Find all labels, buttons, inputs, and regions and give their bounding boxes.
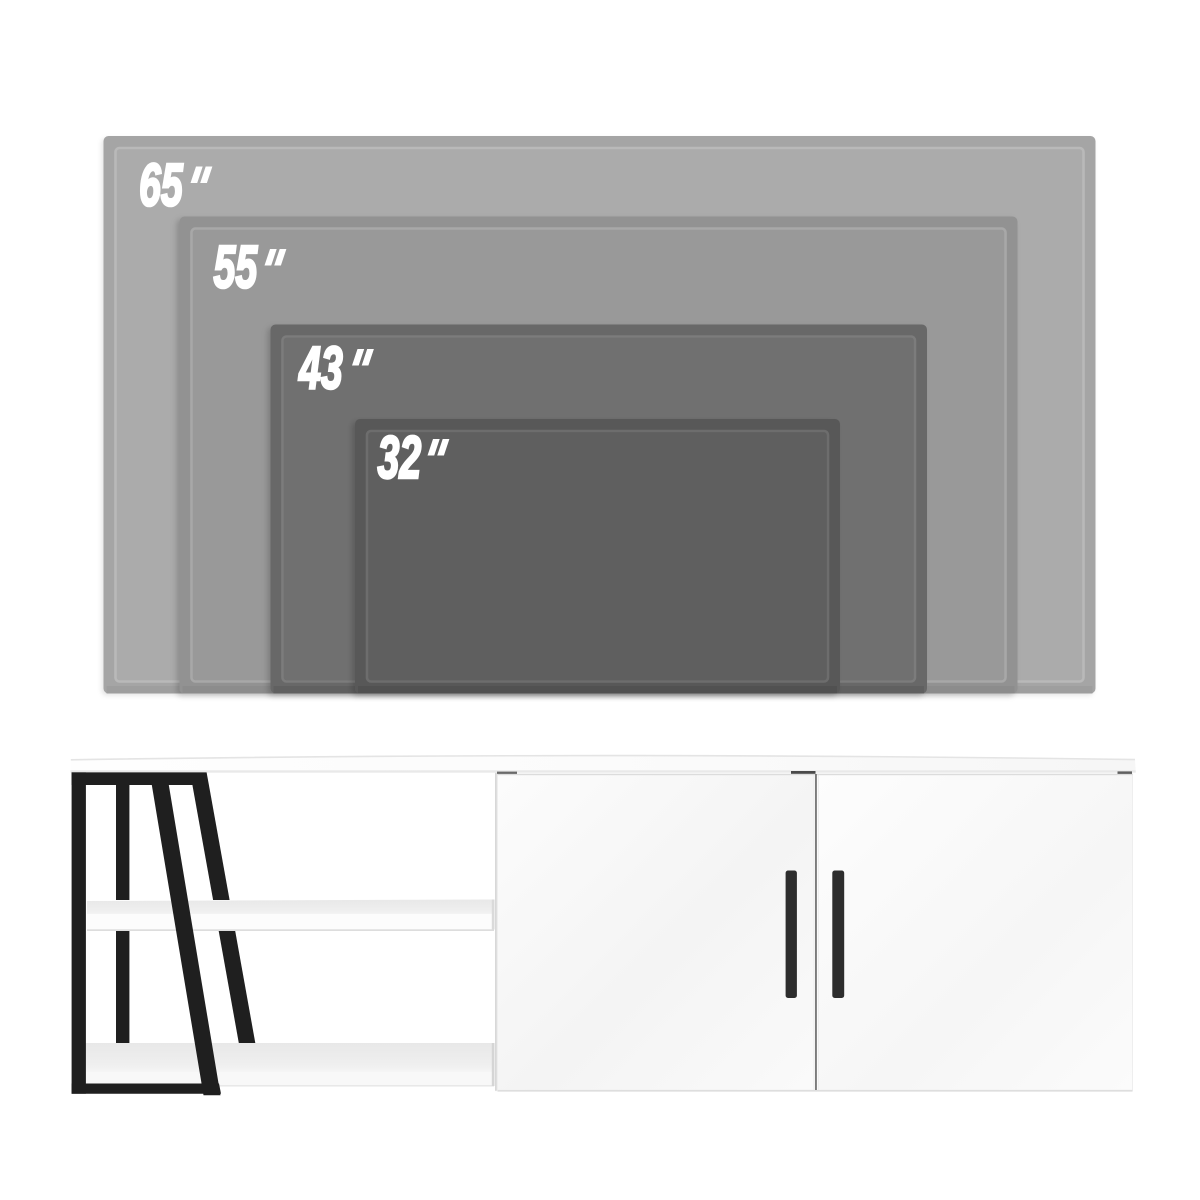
svg-text:32: 32 xyxy=(378,424,422,491)
svg-text:43: 43 xyxy=(298,334,342,401)
svg-text:55: 55 xyxy=(214,233,258,300)
svg-text:65: 65 xyxy=(139,151,183,218)
